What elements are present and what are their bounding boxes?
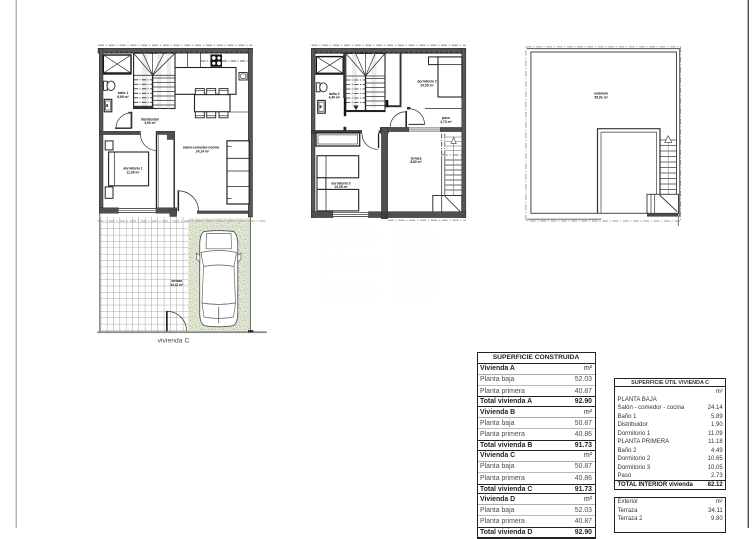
svg-text:solarium: solarium (594, 92, 608, 96)
svg-text:34,11 m²: 34,11 m² (170, 283, 183, 287)
svg-text:10,05 m²: 10,05 m² (334, 185, 348, 189)
svg-text:2,73 m²: 2,73 m² (440, 120, 452, 124)
svg-text:11,09 m²: 11,09 m² (126, 170, 140, 174)
svg-text:8,80 m²: 8,80 m² (410, 160, 422, 164)
svg-text:24,14 m²: 24,14 m² (196, 149, 210, 153)
svg-text:35,91 m²: 35,91 m² (594, 96, 608, 100)
svg-text:3,90 m²: 3,90 m² (144, 121, 156, 125)
svg-text:salón-comedor-cocina: salón-comedor-cocina (183, 145, 219, 149)
svg-text:10,65 m²: 10,65 m² (420, 83, 434, 87)
svg-text:6,89 m²: 6,89 m² (117, 95, 129, 99)
svg-text:vivienda C: vivienda C (158, 338, 190, 345)
svg-text:4,49 m²: 4,49 m² (329, 96, 341, 100)
